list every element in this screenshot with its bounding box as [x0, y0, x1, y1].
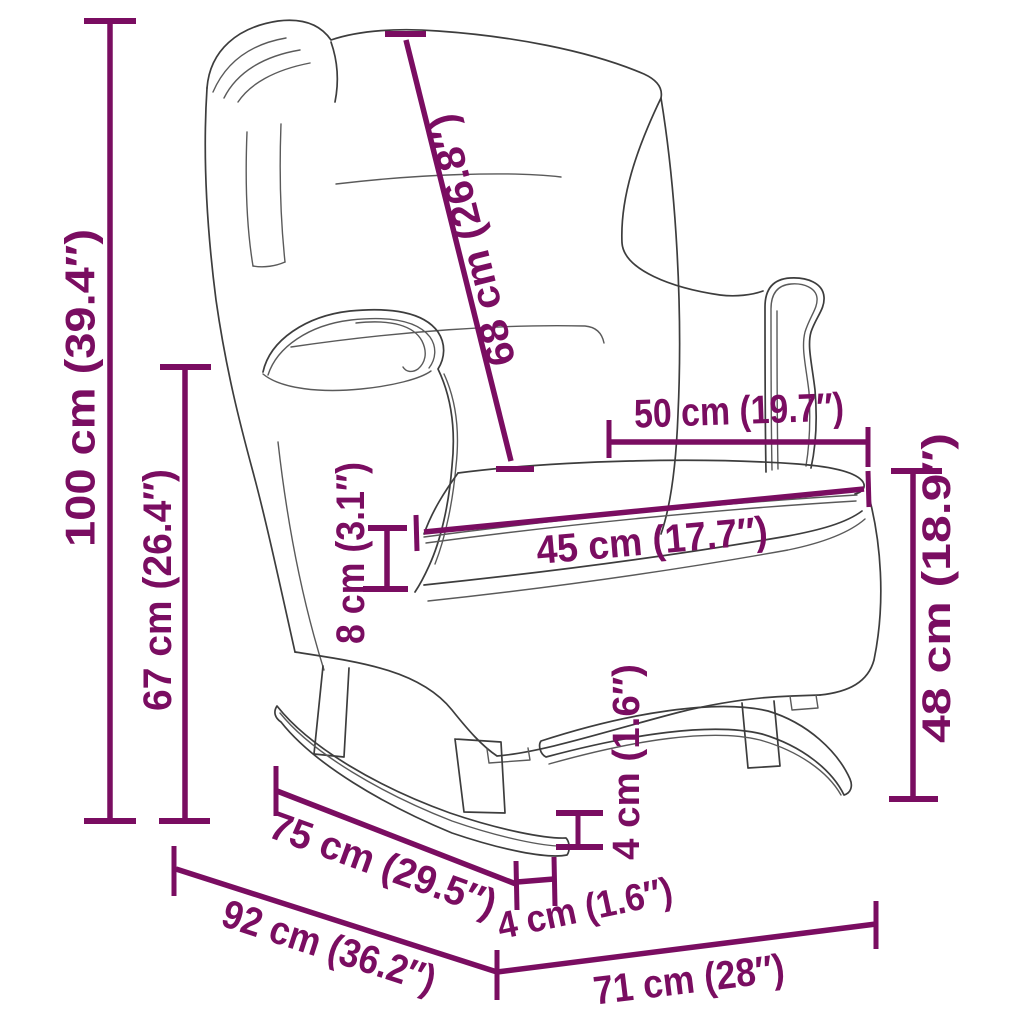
dim-backrest-diagonal-label: 68 cm (26.8″): [419, 110, 524, 371]
dim-cushion-thickness: 8 cm (3.1″): [329, 462, 408, 644]
dim-seat-depth: 50 cm (19.7″): [609, 385, 868, 467]
right-rocker: [540, 707, 852, 795]
dim-seat-height-label: 48 cm (18.9″): [915, 433, 959, 743]
dim-height-to-armrest: 67 cm (26.4″): [136, 367, 211, 821]
dim-total-height: 100 cm (39.4″): [57, 21, 137, 821]
wing-seam: [253, 262, 285, 267]
dim-seat-height: 48 cm (18.9″): [889, 433, 959, 799]
chair-line-art: [205, 20, 881, 856]
dim-rocker-overhang: 4 cm (1.6″): [494, 857, 677, 948]
dim-total-height-label: 100 cm (39.4″): [57, 229, 104, 547]
dimension-diagram-svg: 100 cm (39.4″) 67 cm (26.4″) 68 cm (26.8…: [0, 0, 1024, 1024]
dim-rocker-height-label: 4 cm (1.6″): [606, 664, 648, 860]
dim-seat-width: 45 cm (17.7″): [416, 471, 869, 573]
dim-rocker-height: 4 cm (1.6″): [556, 664, 648, 860]
dim-backrest-diagonal: 68 cm (26.8″): [385, 34, 534, 469]
wing-seam: [246, 132, 253, 266]
seat-base-right-edge: [820, 493, 881, 695]
seat-cushion-left-corner: [424, 473, 458, 534]
headrest-roll-line: [224, 50, 300, 98]
left-armrest-scroll: [356, 322, 425, 372]
dim-height-to-armrest-label: 67 cm (26.4″): [136, 469, 180, 711]
right-rocker-ground-line: [549, 735, 841, 795]
headrest-crease: [331, 42, 337, 102]
chair-left-edge: [205, 88, 295, 652]
wing-seam: [280, 124, 285, 262]
leg-mount-block: [790, 695, 818, 710]
side-panel-edge: [278, 442, 324, 670]
dimension-annotations: 100 cm (39.4″) 67 cm (26.4″) 68 cm (26.8…: [57, 21, 960, 1014]
front-left-leg: [314, 666, 349, 757]
backrest-seam-lower: [291, 326, 604, 347]
product-dimension-image: 100 cm (39.4″) 67 cm (26.4″) 68 cm (26.8…: [0, 0, 1024, 1024]
left-armrest-underside: [263, 371, 431, 390]
right-wing-edge: [622, 98, 763, 296]
dim-seat-depth-label: 50 cm (19.7″): [633, 385, 844, 436]
dim-total-depth-label: 92 cm (36.2″): [217, 892, 442, 1002]
dim-cushion-thickness-label: 8 cm (3.1″): [329, 462, 373, 644]
rear-left-leg: [455, 739, 505, 813]
dim-rocker-length: 75 cm (29.5″): [264, 766, 516, 926]
seat-cushion-back-edge: [458, 460, 864, 494]
